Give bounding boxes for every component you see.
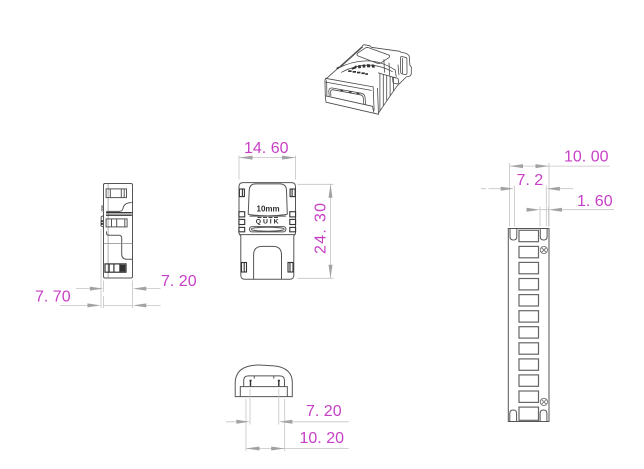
svg-text:14. 60: 14. 60 [244, 140, 289, 157]
svg-text:1. 60: 1. 60 [577, 193, 613, 210]
svg-text:7. 20: 7. 20 [161, 273, 197, 290]
svg-text:7. 70: 7. 70 [35, 288, 71, 305]
svg-text:QUIK: QUIK [256, 219, 281, 226]
svg-text:7. 20: 7. 20 [306, 403, 342, 420]
svg-text:7. 2: 7. 2 [517, 172, 544, 189]
svg-text:10. 20: 10. 20 [300, 430, 345, 447]
svg-text:10. 00: 10. 00 [564, 148, 609, 165]
svg-text:10mm: 10mm [257, 205, 280, 214]
svg-text:24. 30: 24. 30 [313, 202, 330, 254]
